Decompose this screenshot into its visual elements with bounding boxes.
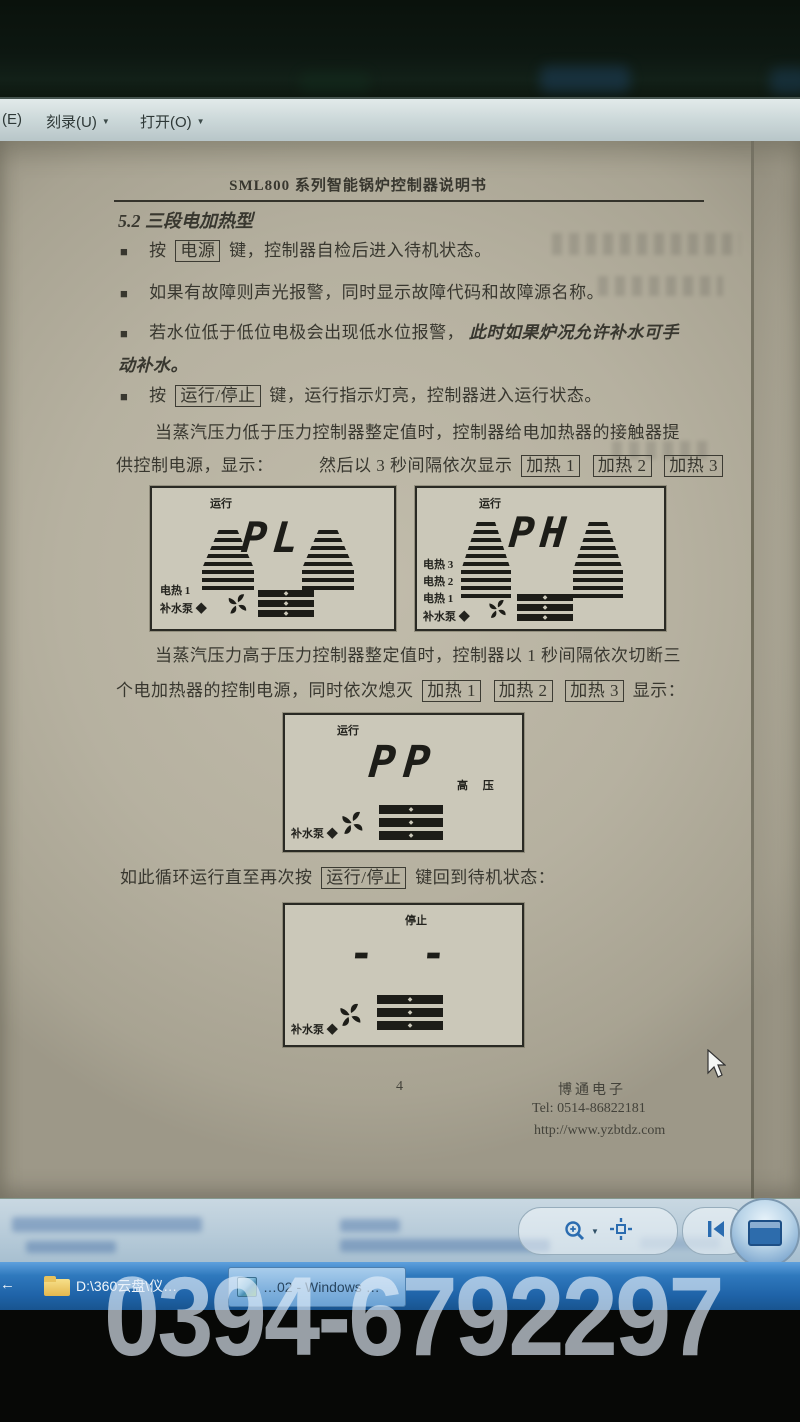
heater3-label: 电热 3 [423, 556, 453, 572]
bullet-marker: ■ [120, 326, 128, 341]
zoom-button[interactable]: ▼ [563, 1219, 599, 1243]
menu-burn-label: 刻录(U) [46, 111, 97, 132]
bullet-fault: ■ 如果有故障则声光报警，同时显示故障代码和故障源名称。 [120, 278, 604, 303]
bullet-text-italic: 此时如果炉况允许补水可手 [469, 323, 679, 342]
bullet-marker: ■ [120, 244, 128, 259]
paragraph-text: 供控制电源，显示： [116, 456, 274, 475]
run-stop-key-box: 运行/停止 [321, 867, 406, 889]
bullet-text: 键，运行指示灯亮，控制器进入运行状态。 [269, 386, 602, 405]
bullet-text: 键，控制器自检后进入待机状态。 [229, 241, 492, 260]
heater2-label: 电热 2 [423, 573, 453, 589]
heat2-key-box: 加热 2 [593, 455, 652, 477]
lcd-status-label: 运行 [210, 495, 232, 511]
pump-fan-icon [224, 590, 252, 618]
heat1-key-box: 加热 1 [422, 680, 481, 702]
actual-size-button[interactable] [609, 1217, 633, 1246]
feed-pump-label: 补水泵 ◆ [160, 600, 207, 616]
page-number: 4 [396, 1079, 403, 1095]
bullet-power: ■ 按 电源 键，控制器自检后进入待机状态。 [120, 236, 492, 262]
menu-open[interactable]: 打开(O) ▼ [140, 111, 205, 132]
fit-to-window-icon [609, 1217, 633, 1241]
feed-pump-label: 补水泵 ◆ [291, 1021, 338, 1037]
section-title: 5.2 三段电加热型 [118, 207, 253, 233]
pump-fan-icon [485, 596, 511, 622]
photo-background-top [0, 0, 800, 97]
bullet-marker: ■ [120, 286, 128, 301]
screen-glow [300, 72, 370, 92]
heat3-key-box: 加热 3 [664, 455, 723, 477]
heater-stack-icon [377, 995, 443, 1030]
paragraph-text: 个电加热器的控制电源，同时依次熄灭 [116, 681, 414, 700]
lcd-value: PH [415, 508, 666, 557]
screen-glow [770, 68, 800, 94]
paragraph-text: 键回到待机状态： [415, 868, 555, 887]
paragraph-line: 当蒸汽压力高于压力控制器整定值时，控制器以 1 秒间隔依次切断三 [155, 641, 681, 666]
pump-fan-icon [337, 807, 369, 839]
lcd-status-label: 停止 [405, 912, 427, 928]
heat2-key-box: 加热 2 [494, 680, 553, 702]
blur-smudge [340, 1219, 400, 1232]
bullet-text: 如果有故障则声光报警，同时显示故障代码和故障源名称。 [149, 283, 604, 302]
bullet-run-stop: ■ 按 运行/停止 键，运行指示灯亮，控制器进入运行状态。 [120, 381, 602, 407]
high-pressure-label: 高 压 [457, 777, 500, 793]
chevron-down-icon: ▼ [102, 117, 110, 126]
paragraph-line: 个电加热器的控制电源，同时依次熄灭 加热 1 加热 2 加热 3 显示： [116, 676, 685, 702]
photo-viewer-toolbar: (E) 刻录(U) ▼ 打开(O) ▼ [0, 97, 800, 144]
lcd-figure-pp: 运行 PP 高 压 补水泵 ◆ [283, 713, 524, 852]
blur-smudge [26, 1241, 116, 1253]
lcd-status-label: 运行 [337, 722, 359, 738]
bullet-text: 按 [149, 241, 167, 260]
ink-bleed-mark [598, 276, 723, 296]
document-page: SML800 系列智能锅炉控制器说明书 5.2 三段电加热型 ■ 按 电源 键，… [0, 141, 800, 1198]
menu-open-label: 打开(O) [140, 111, 192, 132]
bullet-text: 若水位低于低位电极会出现低水位报警， [149, 323, 464, 342]
magnifier-zoom-icon [563, 1219, 587, 1243]
previous-icon [704, 1218, 728, 1240]
blur-smudge [340, 1239, 550, 1252]
footer-company: 博通电子 [558, 1079, 626, 1099]
paragraph-text: 然后以 3 秒间隔依次显示 [319, 456, 513, 475]
heater1-label: 电热 1 [423, 590, 453, 606]
footer-url: http://www.yzbtdz.com [534, 1123, 665, 1139]
heater-stack-icon [379, 805, 443, 840]
paragraph-text: 如此循环运行直至再次按 [120, 868, 313, 887]
chevron-down-icon: ▼ [197, 117, 205, 126]
header-rule [114, 200, 704, 202]
lcd-value: PL [150, 513, 396, 562]
menu-email-label: (E) [2, 111, 22, 128]
feed-pump-label: 补水泵 ◆ [291, 825, 338, 841]
photo-of-monitor: (E) 刻录(U) ▼ 打开(O) ▼ SML800 系列智能锅炉控制器说明书 … [0, 0, 800, 1422]
chevron-down-icon: ▼ [591, 1227, 599, 1236]
watermark-phone-number: 0394-6792297 [104, 1252, 722, 1381]
lcd-value: - - [283, 931, 524, 977]
bullet-low-water-line2: 动补水。 [118, 351, 188, 376]
paragraph-line: 供控制电源，显示： 然后以 3 秒间隔依次显示 加热 1 加热 2 加热 3 [116, 451, 727, 477]
loop-sentence: 如此循环运行直至再次按 运行/停止 键回到待机状态： [120, 863, 555, 889]
lcd-figure-pl: 运行 PL 电热 1 补水泵 ◆ [150, 486, 396, 631]
pump-fan-icon [335, 999, 367, 1031]
run-stop-key-box: 运行/停止 [175, 385, 260, 407]
heater1-label: 电热 1 [160, 582, 190, 598]
paragraph-line: 当蒸汽压力低于压力控制器整定值时，控制器给电加热器的接触器提 [155, 418, 680, 443]
page-title: SML800 系列智能锅炉控制器说明书 [0, 174, 716, 195]
previous-image-button[interactable] [704, 1218, 728, 1245]
lcd-figure-ph: 运行 PH 电热 3 电热 2 电热 1 补水泵 ◆ [415, 486, 666, 631]
menu-email-partial[interactable]: (E) [2, 111, 22, 128]
lcd-figure-standby: 停止 - - 补水泵 ◆ [283, 903, 524, 1047]
power-key-box: 电源 [175, 240, 220, 262]
slideshow-icon [748, 1220, 782, 1246]
heater-stack-icon [517, 594, 573, 621]
taskbar-edge-mark: ← [0, 1276, 15, 1293]
heat3-key-box: 加热 3 [565, 680, 624, 702]
folder-icon [44, 1276, 70, 1296]
feed-pump-label: 补水泵 ◆ [423, 608, 470, 624]
bullet-marker: ■ [120, 389, 128, 404]
heater-stack-icon [258, 590, 314, 617]
screen-glow [540, 66, 630, 92]
paragraph-text: 显示： [633, 681, 686, 700]
blur-smudge [12, 1217, 202, 1232]
play-slideshow-button[interactable] [730, 1198, 800, 1268]
bullet-low-water: ■ 若水位低于低位电极会出现低水位报警， 此时如果炉况允许补水可手 [120, 318, 679, 343]
mouse-cursor [706, 1049, 726, 1079]
ink-bleed-mark [552, 233, 740, 255]
paper-crease-shadow [754, 141, 800, 1198]
bullet-text: 按 [149, 386, 167, 405]
menu-burn[interactable]: 刻录(U) ▼ [46, 111, 110, 132]
heat1-key-box: 加热 1 [521, 455, 580, 477]
footer-telephone: Tel: 0514-86822181 [532, 1101, 646, 1117]
zoom-fit-group: ▼ [518, 1207, 678, 1255]
